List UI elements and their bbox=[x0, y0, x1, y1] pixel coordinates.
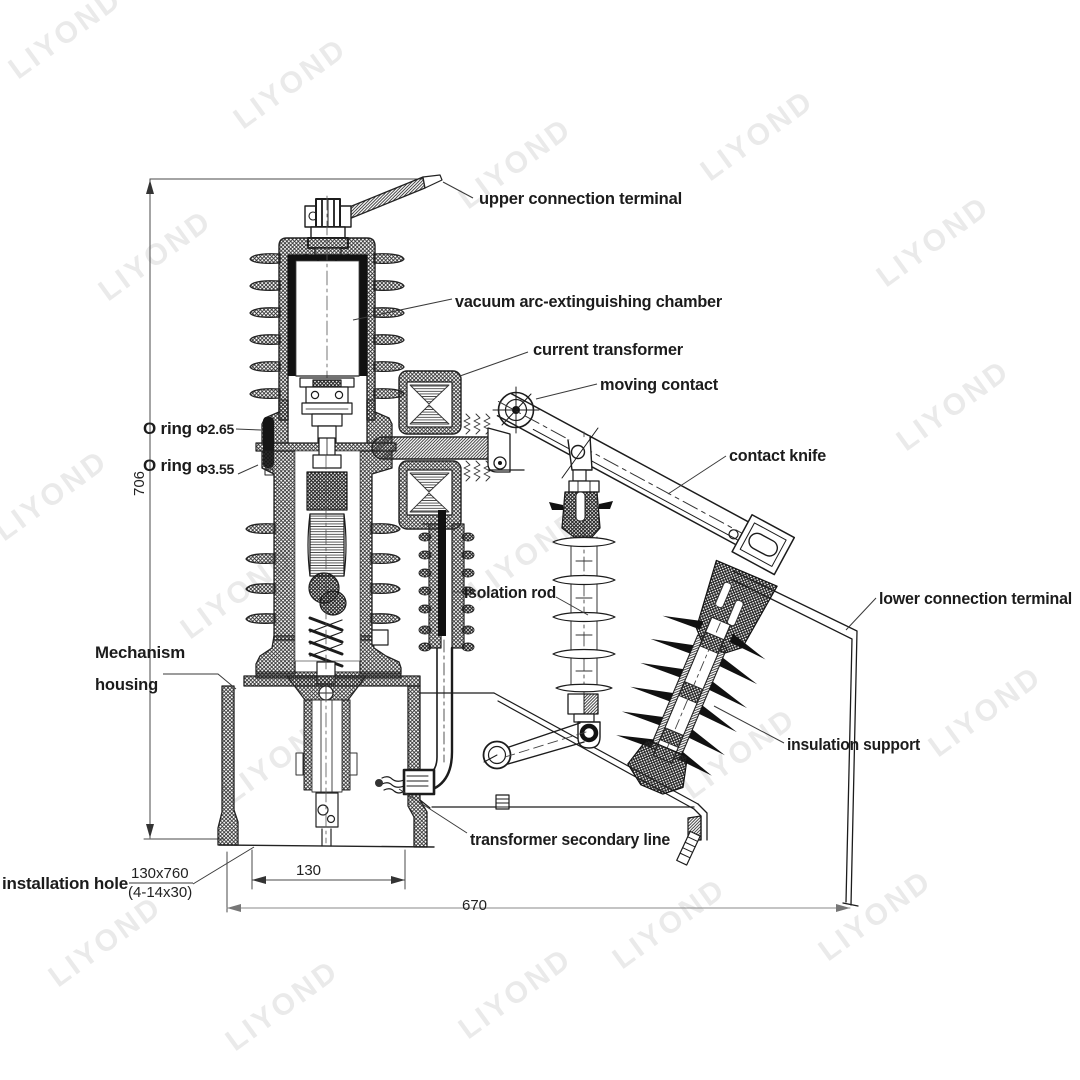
svg-text:130x760: 130x760 bbox=[131, 865, 189, 882]
svg-text:O ring Φ2.65: O ring Φ2.65 bbox=[143, 419, 235, 438]
svg-text:(4-14x30): (4-14x30) bbox=[128, 884, 192, 901]
svg-text:670: 670 bbox=[462, 897, 487, 914]
svg-text:vacuum arc-extinguishing chamb: vacuum arc-extinguishing chamber bbox=[455, 292, 723, 311]
svg-text:transformer secondary line: transformer secondary line bbox=[470, 830, 670, 849]
svg-text:130: 130 bbox=[296, 862, 321, 879]
svg-text:lower connection terminal: lower connection terminal bbox=[879, 589, 1072, 608]
svg-text:Mechanism: Mechanism bbox=[95, 643, 185, 662]
svg-text:contact knife: contact knife bbox=[729, 446, 826, 465]
svg-text:706: 706 bbox=[131, 471, 148, 496]
svg-text:housing: housing bbox=[95, 675, 158, 694]
svg-text:installation hole: installation hole bbox=[2, 874, 128, 893]
svg-text:insulation support: insulation support bbox=[787, 735, 920, 754]
svg-text:moving contact: moving contact bbox=[600, 375, 719, 394]
svg-text:Isolation rod: Isolation rod bbox=[464, 583, 556, 602]
svg-text:current transformer: current transformer bbox=[533, 340, 684, 359]
svg-text:upper connection terminal: upper connection terminal bbox=[479, 189, 682, 208]
